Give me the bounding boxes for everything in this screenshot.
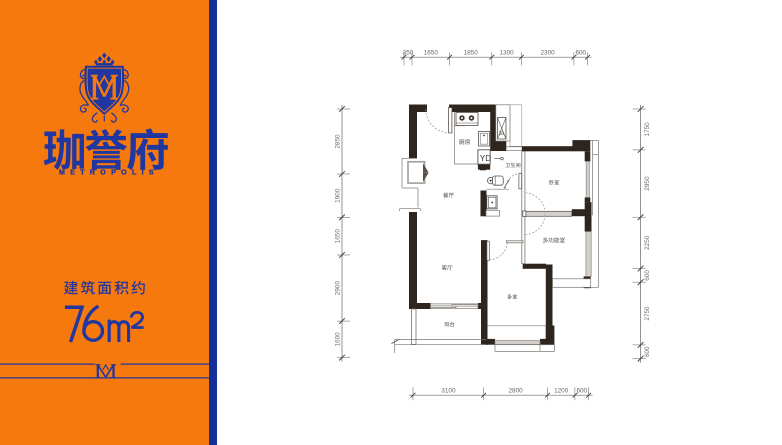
svg-text:YD: YD (480, 154, 491, 163)
svg-text:2300: 2300 (540, 50, 555, 57)
svg-text:1650: 1650 (334, 229, 341, 244)
svg-text:600: 600 (644, 270, 651, 281)
svg-text:2250: 2250 (644, 235, 651, 250)
svg-text:1900: 1900 (334, 188, 341, 203)
svg-text:600: 600 (576, 388, 587, 395)
svg-text:2950: 2950 (644, 176, 651, 191)
svg-text:600: 600 (644, 346, 651, 357)
svg-text:350: 350 (403, 50, 414, 57)
svg-text:3100: 3100 (441, 388, 456, 395)
svg-text:2800: 2800 (508, 388, 523, 395)
svg-text:1650: 1650 (424, 50, 439, 57)
svg-text:2850: 2850 (334, 134, 341, 149)
svg-text:1750: 1750 (644, 122, 651, 137)
svg-text:METROPOLIS: METROPOLIS (59, 169, 159, 177)
svg-text:1200: 1200 (554, 388, 569, 395)
svg-text:1600: 1600 (334, 332, 341, 347)
svg-text:600: 600 (575, 50, 586, 57)
svg-text:2900: 2900 (334, 281, 341, 296)
svg-text:1850: 1850 (464, 50, 479, 57)
svg-text:1300: 1300 (499, 50, 514, 57)
svg-text:2750: 2750 (644, 306, 651, 321)
